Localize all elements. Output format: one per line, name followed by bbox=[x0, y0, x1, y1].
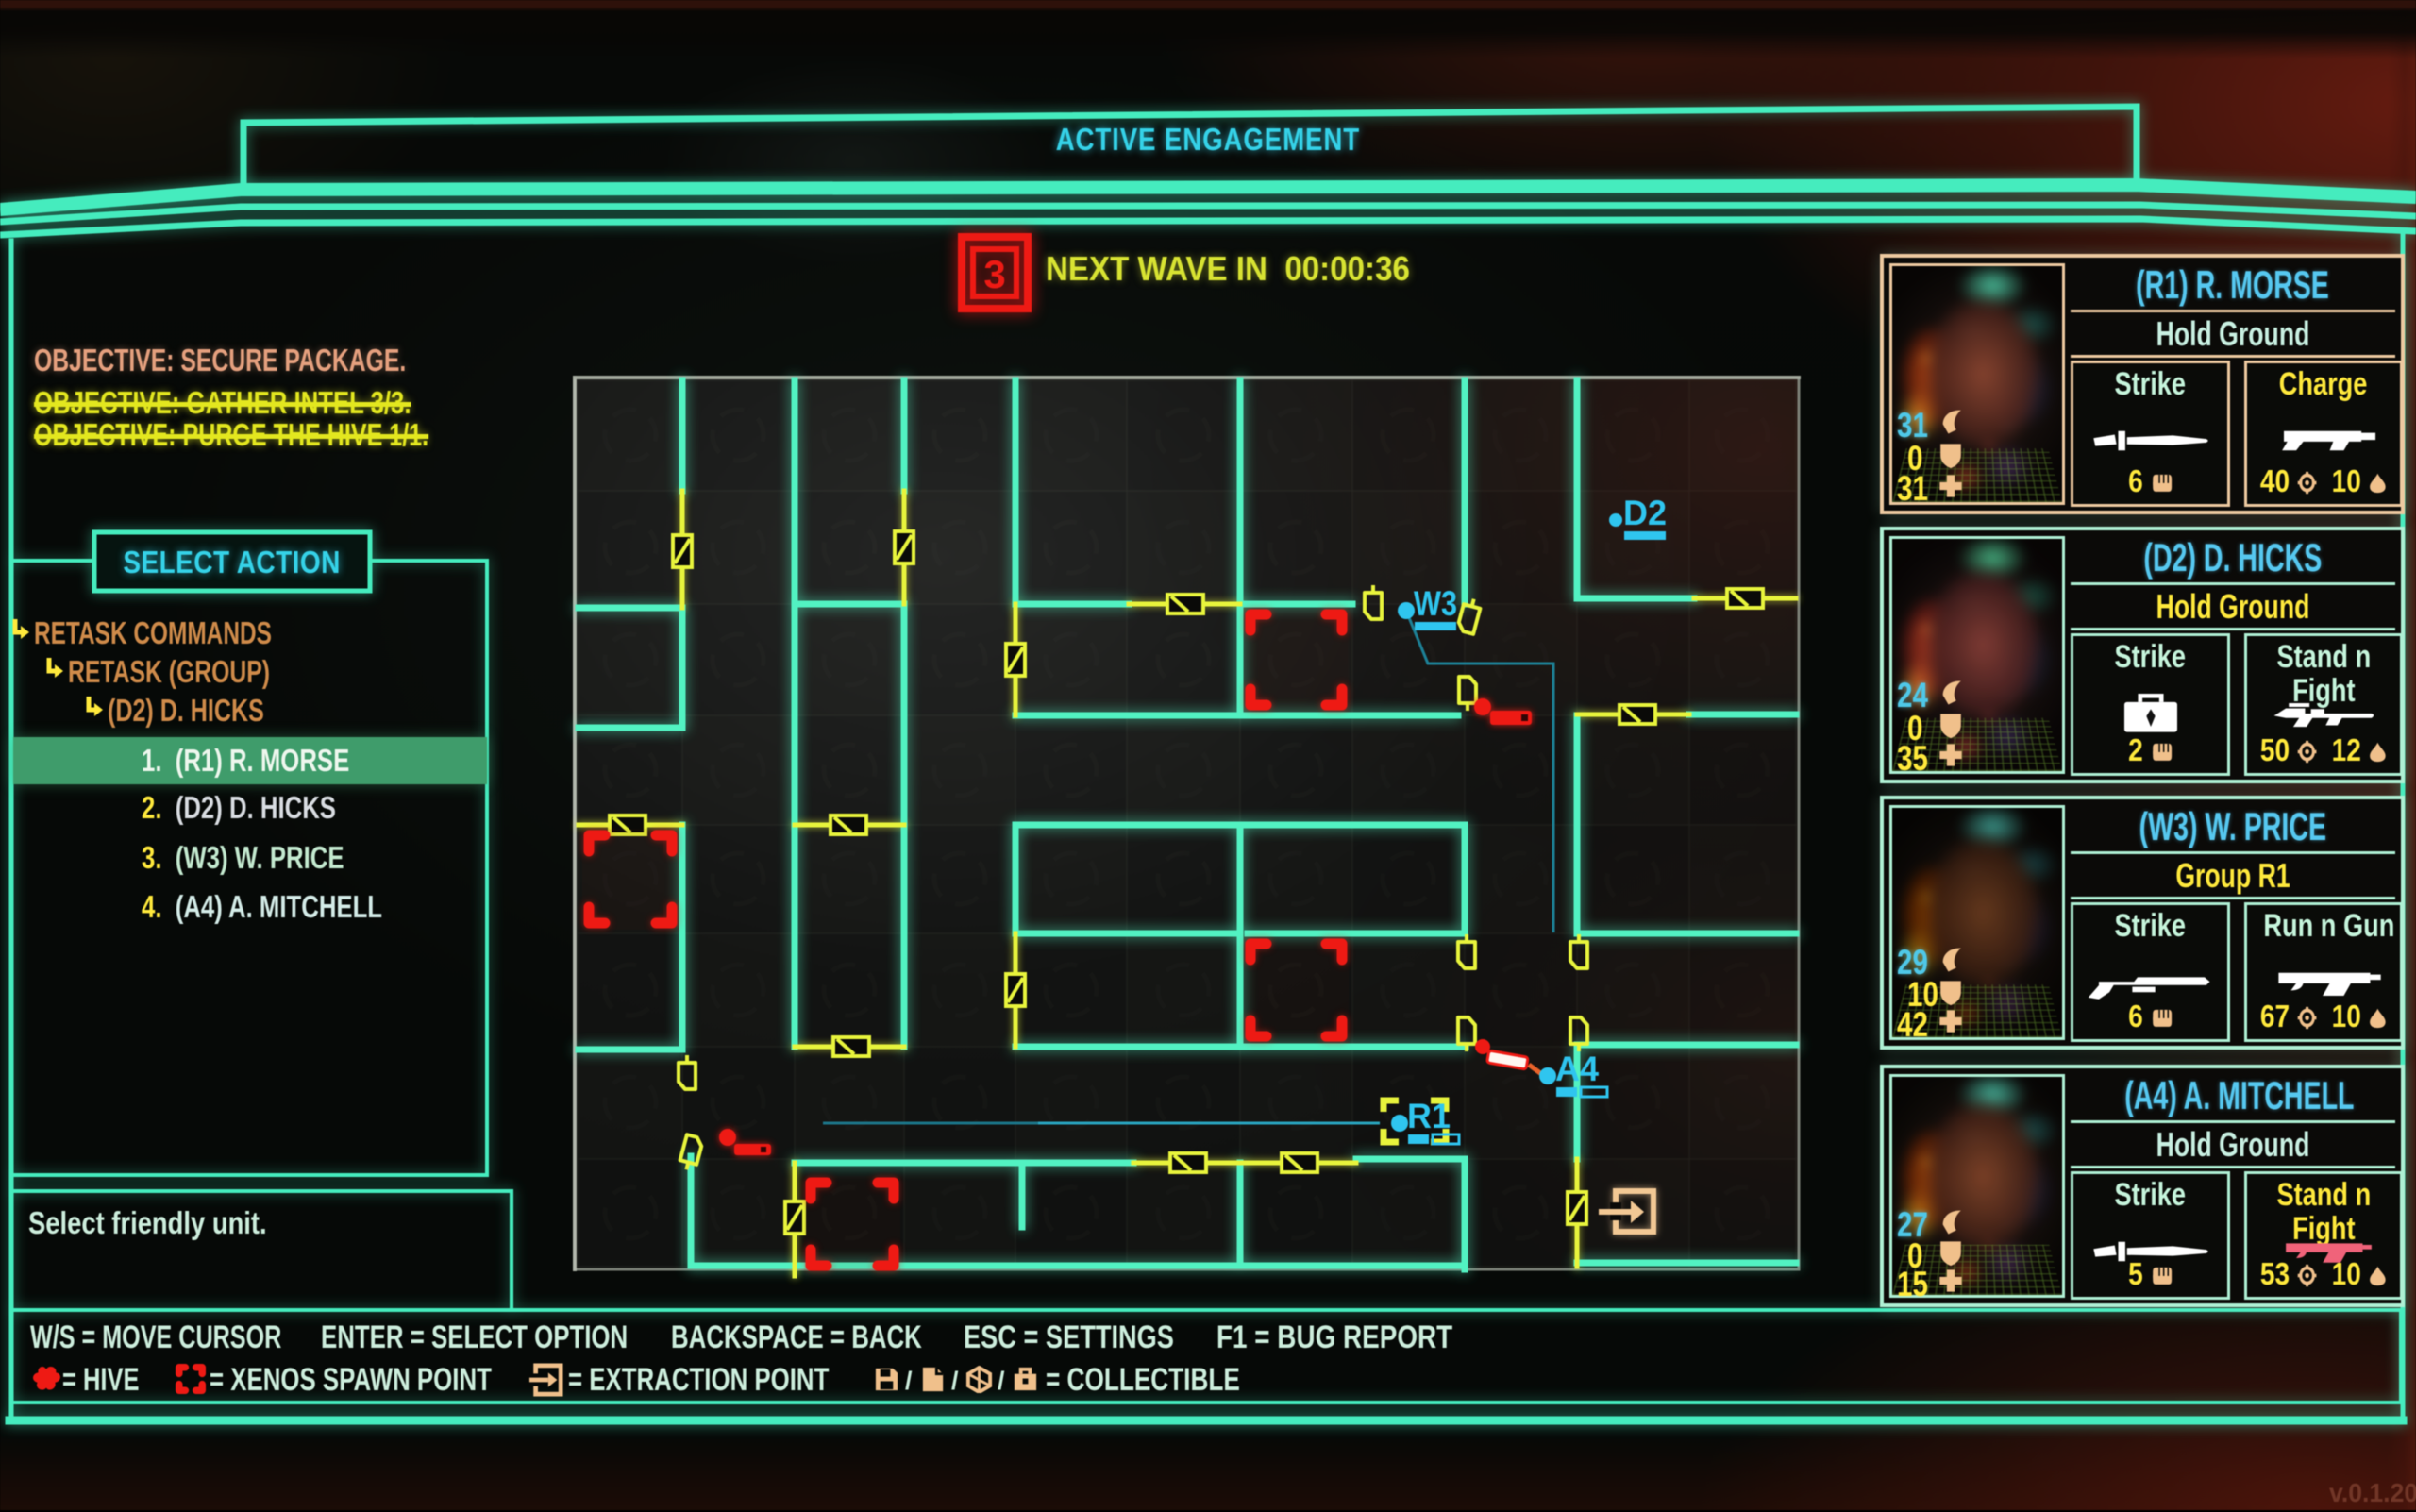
svg-text:D2: D2 bbox=[1623, 494, 1667, 532]
svg-text:3: 3 bbox=[983, 252, 1005, 296]
svg-text:A4: A4 bbox=[1555, 1050, 1599, 1088]
svg-text:W3: W3 bbox=[1414, 584, 1457, 623]
svg-text:R1: R1 bbox=[1407, 1097, 1451, 1135]
